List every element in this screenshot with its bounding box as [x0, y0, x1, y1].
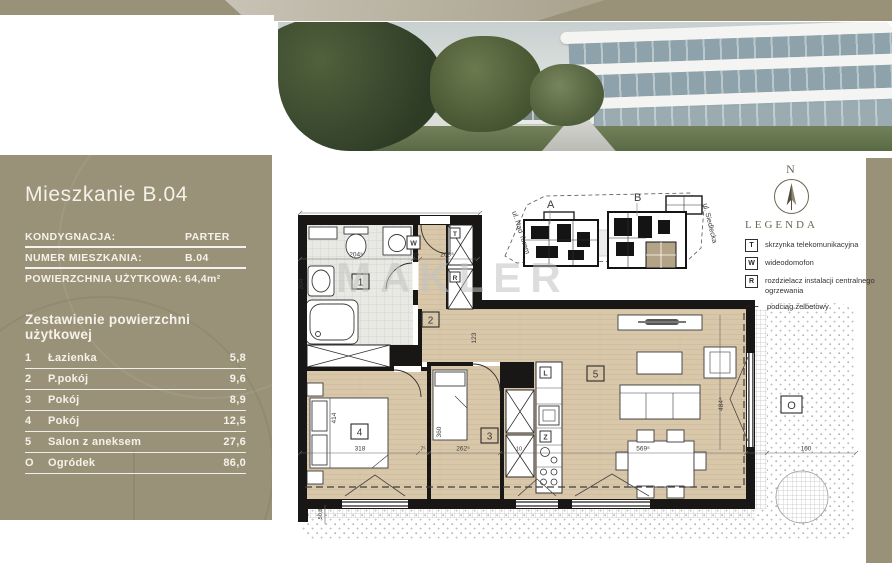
wardrobe-cabinet	[307, 345, 390, 367]
header-blank-panel	[0, 15, 274, 155]
svg-text:318: 318	[355, 446, 366, 453]
svg-text:569⁵: 569⁵	[636, 446, 650, 453]
info-label: POWIERZCHNIA UŻYTKOWA:	[25, 273, 185, 285]
legend-item: – – podciąg żelbetowy	[745, 301, 877, 312]
legend-item: W wideodomofon	[745, 257, 877, 270]
room-label-salon: 5	[593, 370, 599, 381]
row-area: 12,5	[223, 415, 246, 427]
videophone-icon: W	[745, 257, 758, 270]
compass-dial	[774, 179, 809, 214]
compass-needle-icon	[775, 180, 808, 213]
legend-item: R rozdzielacz instalacji centralnego ogr…	[745, 275, 877, 296]
table-row: 4 Pokój 12,5	[25, 411, 246, 432]
row-name: Ogródek	[48, 457, 223, 469]
row-name: Salon z aneksem	[48, 436, 223, 448]
svg-text:262⁵: 262⁵	[456, 446, 470, 453]
row-no: 5	[25, 436, 48, 448]
apartment-info-panel: Mieszkanie B.04 KONDYGNACJA: PARTER NUME…	[0, 155, 272, 520]
table-row: 2 P.pokój 9,6	[25, 369, 246, 390]
brochure-page: Mieszkanie B.04 KONDYGNACJA: PARTER NUME…	[0, 0, 892, 563]
svg-text:360: 360	[436, 426, 443, 437]
row-area: 5,8	[230, 352, 246, 364]
row-no: 1	[25, 352, 48, 364]
band-ornament	[225, 0, 605, 21]
svg-text:W: W	[410, 241, 417, 248]
row-name: Pokój	[48, 394, 230, 406]
svg-text:484⁴: 484⁴	[718, 397, 725, 411]
table-row: 5 Salon z aneksem 27,6	[25, 432, 246, 453]
info-row-number: NUMER MIESZKANIA: B.04	[25, 248, 246, 269]
svg-text:414: 414	[331, 412, 338, 423]
table-row: O Ogródek 86,0	[25, 453, 246, 474]
row-name: P.pokój	[48, 373, 230, 385]
row-name: Pokój	[48, 415, 223, 427]
info-value: B.04	[185, 252, 246, 264]
videophone-marker: W	[407, 236, 420, 249]
room-label-room4: 4	[357, 428, 363, 439]
svg-text:50,8: 50,8	[318, 509, 324, 520]
row-name: Łazienka	[48, 352, 230, 364]
kitchen-l-marker: L	[543, 371, 548, 378]
building-a-label: A	[547, 199, 555, 211]
room-label-garden: O	[787, 400, 796, 412]
legend-item: T skrzynka telekomunikacyjna	[745, 239, 877, 252]
svg-text:160: 160	[801, 446, 812, 453]
svg-text:7⁵: 7⁵	[420, 446, 425, 453]
building-photo	[278, 22, 892, 151]
info-label: KONDYGNACJA:	[25, 231, 185, 243]
table-row: 1 Łazienka 5,8	[25, 348, 246, 369]
room-label-hall: 2	[428, 316, 434, 327]
row-no: O	[25, 457, 48, 469]
watermark: MAKLER	[336, 254, 570, 302]
area-table: Zestawienie powierzchni użytkowej 1 Łazi…	[25, 312, 246, 474]
dashed-beam-icon: – –	[745, 301, 760, 312]
compass: N	[768, 162, 814, 214]
row-no: 2	[25, 373, 48, 385]
legend-title: LEGENDA	[745, 219, 877, 231]
legend: LEGENDA T skrzynka telekomunikacyjna W w…	[745, 219, 877, 317]
kitchen-z-marker: Z	[543, 435, 548, 442]
info-value: PARTER	[185, 231, 246, 243]
building-b-label: B	[634, 192, 641, 204]
legend-item-label: podciąg żelbetowy	[767, 301, 829, 312]
table-row: 3 Pokój 8,9	[25, 390, 246, 411]
svg-text:204: 204	[298, 278, 305, 289]
svg-text:10: 10	[516, 447, 522, 453]
row-area: 86,0	[223, 457, 246, 469]
street-right-label: ul. Siedlecka	[701, 202, 720, 244]
area-table-title: Zestawienie powierzchni użytkowej	[25, 312, 246, 342]
legend-item-label: wideodomofon	[765, 257, 814, 268]
row-no: 3	[25, 394, 48, 406]
page-title: Mieszkanie B.04	[25, 183, 246, 207]
legend-item-label: skrzynka telekomunikacyjna	[765, 239, 858, 250]
legend-item-label: rozdzielacz instalacji centralnego ogrze…	[765, 275, 877, 296]
info-row-area: POWIERZCHNIA UŻYTKOWA: 64,4m²	[25, 269, 246, 288]
info-row-floor: KONDYGNACJA: PARTER	[25, 227, 246, 248]
info-value: 64,4m²	[185, 273, 246, 285]
row-area: 9,6	[230, 373, 246, 385]
row-no: 4	[25, 415, 48, 427]
row-area: 8,9	[230, 394, 246, 406]
row-area: 27,6	[223, 436, 246, 448]
telecom-box-icon: T	[745, 239, 758, 252]
heating-distributor-icon: R	[745, 275, 758, 288]
room-label-room3: 3	[487, 432, 493, 443]
info-label: NUMER MIESZKANIA:	[25, 252, 185, 264]
telecom-box-marker: T	[453, 231, 457, 238]
kitchen-annex: L Z	[504, 362, 562, 493]
svg-text:123: 123	[471, 332, 478, 343]
compass-north-label: N	[768, 162, 814, 177]
